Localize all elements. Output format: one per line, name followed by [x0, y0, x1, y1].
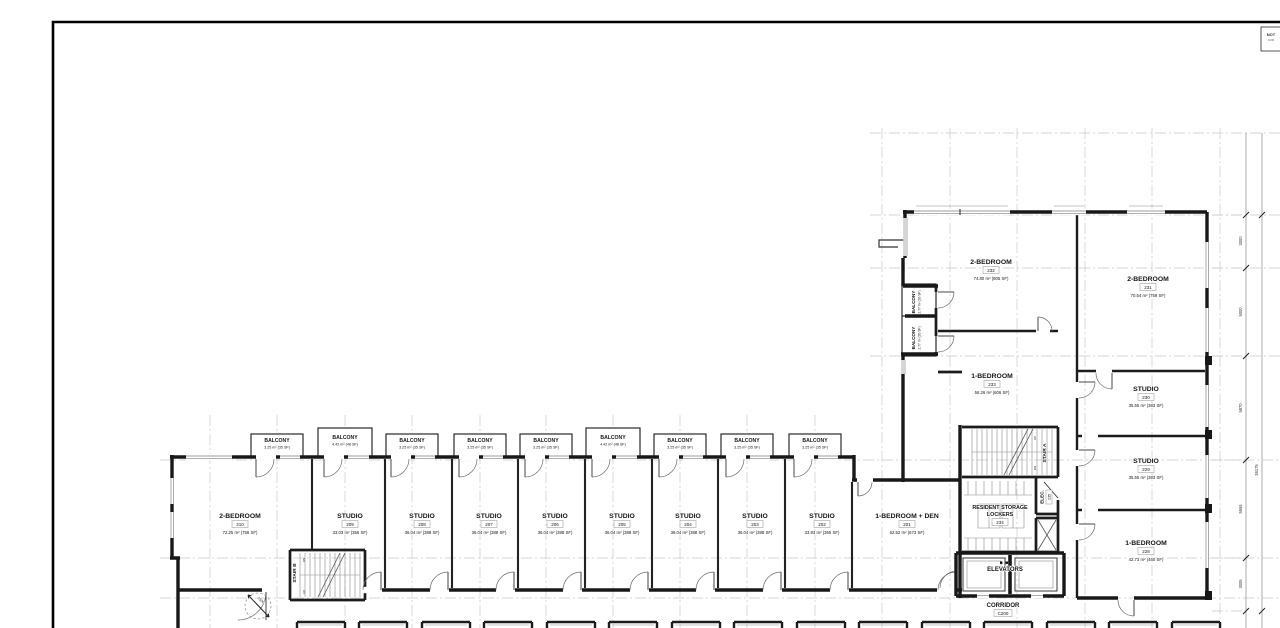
room-tag: 207 — [485, 522, 493, 527]
drawing-sheet: 3000 5000 5870 5555 3005 36175 — [0, 0, 1280, 628]
storage-label-line2: LOCKERS — [987, 512, 1014, 518]
balcony-area: 3.25 m² (35 SF) — [399, 446, 425, 450]
room-area: 33.03 m² (356 SF) — [333, 530, 368, 535]
dimension-value: 3005 — [1238, 579, 1243, 589]
room-tag: 231 — [1144, 285, 1152, 290]
balcony-area: 3.25 m² (35 SF) — [667, 446, 693, 450]
balcony-name: BALCONY — [911, 291, 916, 314]
stair-a-label: STAIR A — [1042, 443, 1048, 462]
stair-b-label: STAIR B — [292, 563, 298, 583]
balcony-name: BALCONY — [802, 438, 828, 444]
stair-up-label: UP — [302, 590, 306, 594]
balcony-name: BALCONY — [911, 327, 916, 350]
room-name: 1-BEDROOM — [971, 373, 1013, 380]
balcony-area: 3.25 m² (35 SF) — [264, 446, 290, 450]
balcony-label: BALCONY4.42 m² (48 SF) — [600, 435, 626, 447]
paper-background — [0, 0, 1280, 628]
room-tag: 206 — [551, 522, 559, 527]
balcony-name: BALCONY — [667, 438, 693, 444]
balcony-label: BALCONY3.25 m² (35 SF) — [734, 438, 760, 450]
room-tag: 229 — [1142, 467, 1150, 472]
room-name: STUDIO — [809, 513, 835, 520]
corridor-tag: C200 — [998, 611, 1009, 616]
room-tag: 233 — [988, 382, 996, 387]
stamp-line1: NOT — [1267, 32, 1276, 37]
room-name: 1-BEDROOM + DEN — [875, 513, 939, 520]
dimension-value: 5000 — [1238, 307, 1243, 317]
elec-tag: 235 — [1048, 494, 1052, 500]
room-tag: 205 — [618, 522, 626, 527]
room-name: 2-BEDROOM — [970, 259, 1012, 266]
room-name: STUDIO — [609, 513, 635, 520]
room-area: 56.26 m² (606 SF) — [975, 390, 1010, 395]
balcony-label: BALCONY3.25 m² (35 SF) — [467, 438, 493, 450]
balcony-area: 3.25 m² (35 SF) — [467, 446, 493, 450]
room-name: STUDIO — [542, 513, 568, 520]
revision-stamp: NOT FOR — [1261, 27, 1280, 51]
balcony-name: BALCONY — [332, 435, 358, 441]
room-name: 2-BEDROOM — [1127, 276, 1169, 283]
stair-up-label: UP — [1033, 436, 1037, 440]
room-area: 36.04 m² (388 SF) — [405, 530, 440, 535]
room-area: 70.54 m² (759 SF) — [1131, 293, 1166, 298]
room-tag: 204 — [684, 522, 692, 527]
room-tag: 202 — [818, 522, 826, 527]
balcony-name: BALCONY — [533, 438, 559, 444]
room-tag: 232 — [987, 268, 995, 273]
balcony-name: BALCONY — [467, 438, 493, 444]
room-area: 36.04 m² (388 SF) — [738, 530, 773, 535]
room-name: STUDIO — [476, 513, 502, 520]
balcony-area: 2.77 m² (30 SF) — [918, 326, 922, 349]
elec-label: ELEC. — [1040, 490, 1045, 504]
corridor-label: CORRIDOR — [987, 603, 1020, 609]
balcony-name: BALCONY — [600, 435, 626, 441]
room-name: 2-BEDROOM — [219, 513, 261, 520]
balcony-name: BALCONY — [264, 438, 290, 444]
room-tag: 201 — [903, 522, 911, 527]
balcony-area: 2.77 m² (30 SF) — [918, 290, 922, 313]
balcony-area: 4.42 m² (48 SF) — [332, 443, 358, 447]
room-area: 35.55 m² (383 SF) — [1129, 475, 1164, 480]
balcony-area: 4.42 m² (48 SF) — [600, 443, 626, 447]
room-area: 62.52 m² (673 SF) — [890, 530, 925, 535]
balcony-area: 3.25 m² (35 SF) — [533, 446, 559, 450]
stair-dn-label: DN — [1033, 466, 1037, 470]
balcony-name: BALCONY — [734, 438, 760, 444]
room-area: 74.80 m² (805 SF) — [974, 276, 1009, 281]
storage-tag: 234 — [996, 520, 1004, 525]
room-name: STUDIO — [409, 513, 435, 520]
balcony-area: 3.25 m² (35 SF) — [802, 446, 828, 450]
room-name: 1-BEDROOM — [1125, 540, 1167, 547]
balcony-label: BALCONY3.25 m² (35 SF) — [264, 438, 290, 450]
storage-label-line1: RESIDENT STORAGE — [972, 505, 1028, 511]
elevator-call-marker — [1000, 562, 1002, 564]
stamp-line2: FOR — [1268, 38, 1275, 42]
room-area: 42.73 m² (460 SF) — [1129, 557, 1164, 562]
elevators-label: ELEVATORS — [987, 567, 1023, 573]
dimension-value: 5870 — [1238, 403, 1243, 413]
room-name: STUDIO — [337, 513, 363, 520]
room-tag: 230 — [1142, 395, 1150, 400]
balcony-label: BALCONY4.42 m² (48 SF) — [332, 435, 358, 447]
room-area: 36.04 m² (388 SF) — [472, 530, 507, 535]
dimension-value: 3000 — [1238, 236, 1243, 246]
room-tag: 228 — [1142, 549, 1150, 554]
elevator-call-marker — [1006, 562, 1008, 564]
room-area: 36.04 m² (388 SF) — [605, 530, 640, 535]
balcony-name: BALCONY — [399, 438, 425, 444]
room-area: 72.25 m² (756 SF) — [223, 530, 258, 535]
balcony-label: BALCONY3.25 m² (35 SF) — [667, 438, 693, 450]
balcony-label: BALCONY3.25 m² (35 SF) — [802, 438, 828, 450]
dimension-value: 5555 — [1238, 504, 1243, 514]
room-area: 36.04 m² (388 SF) — [671, 530, 706, 535]
stair-dn-label: DN — [302, 558, 306, 562]
room-name: STUDIO — [1133, 386, 1159, 393]
room-name: STUDIO — [742, 513, 768, 520]
room-name: STUDIO — [1133, 458, 1159, 465]
room-tag: 208 — [418, 522, 426, 527]
room-area: 35.55 m² (383 SF) — [1129, 403, 1164, 408]
room-area: 36.04 m² (388 SF) — [538, 530, 573, 535]
room-tag: 210 — [236, 522, 244, 527]
room-area: 33.93 m² (365 SF) — [805, 530, 840, 535]
room-name: STUDIO — [675, 513, 701, 520]
elec-label-group: ELEC. 235 — [1040, 490, 1053, 504]
balcony-area: 3.25 m² (35 SF) — [734, 446, 760, 450]
balcony-label: BALCONY3.25 m² (35 SF) — [533, 438, 559, 450]
dimension-overall: 36175 — [1254, 464, 1259, 476]
room-tag: 203 — [751, 522, 759, 527]
room-tag: 209 — [346, 522, 354, 527]
balcony-label: BALCONY3.25 m² (35 SF) — [399, 438, 425, 450]
